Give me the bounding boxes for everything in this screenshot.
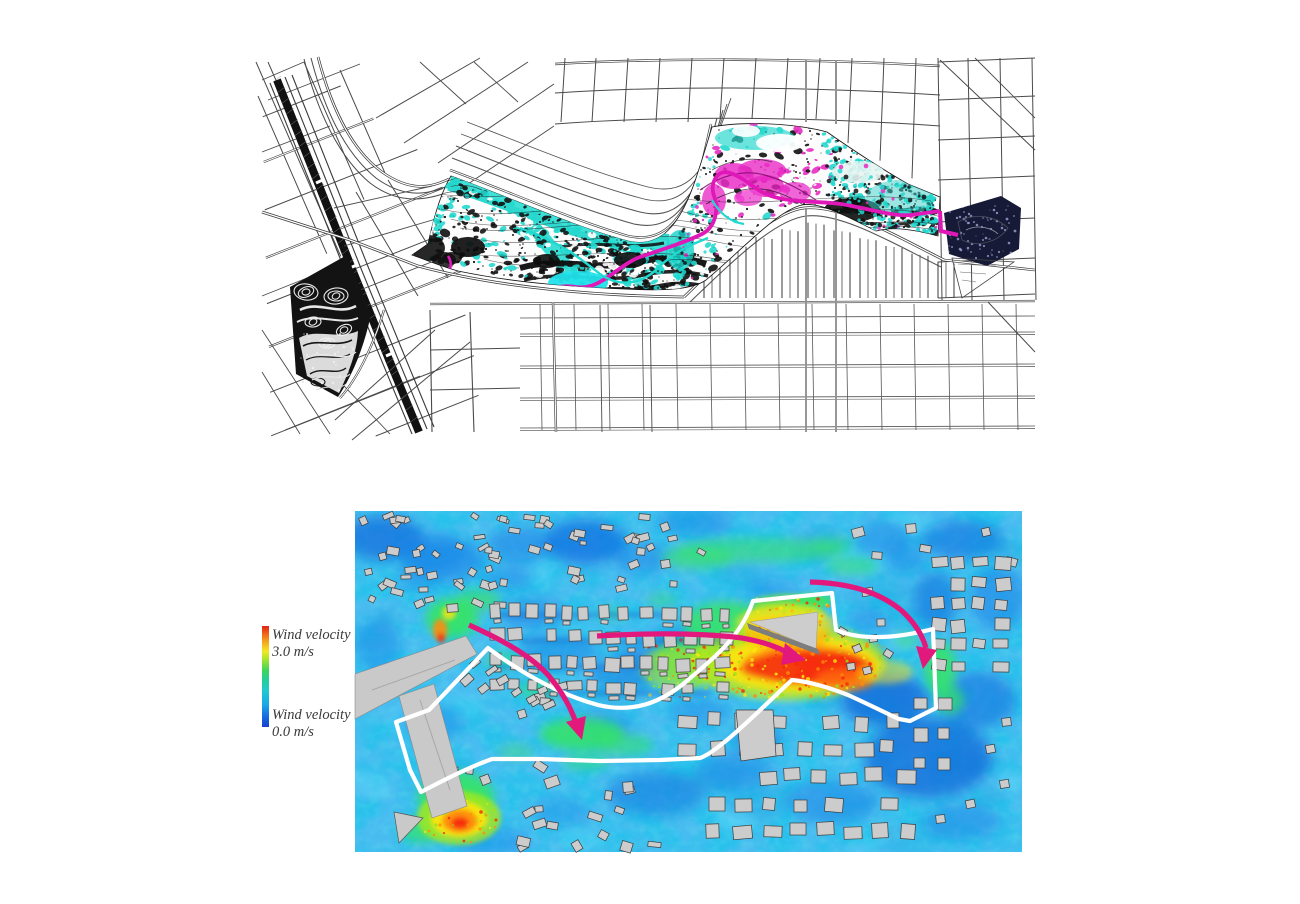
svg-text:Wind velocity: Wind velocity bbox=[272, 707, 351, 723]
svg-text:3.0 m/s: 3.0 m/s bbox=[271, 644, 314, 660]
svg-text:Wind velocity: Wind velocity bbox=[272, 627, 351, 643]
svg-text:0.0 m/s: 0.0 m/s bbox=[272, 724, 314, 740]
